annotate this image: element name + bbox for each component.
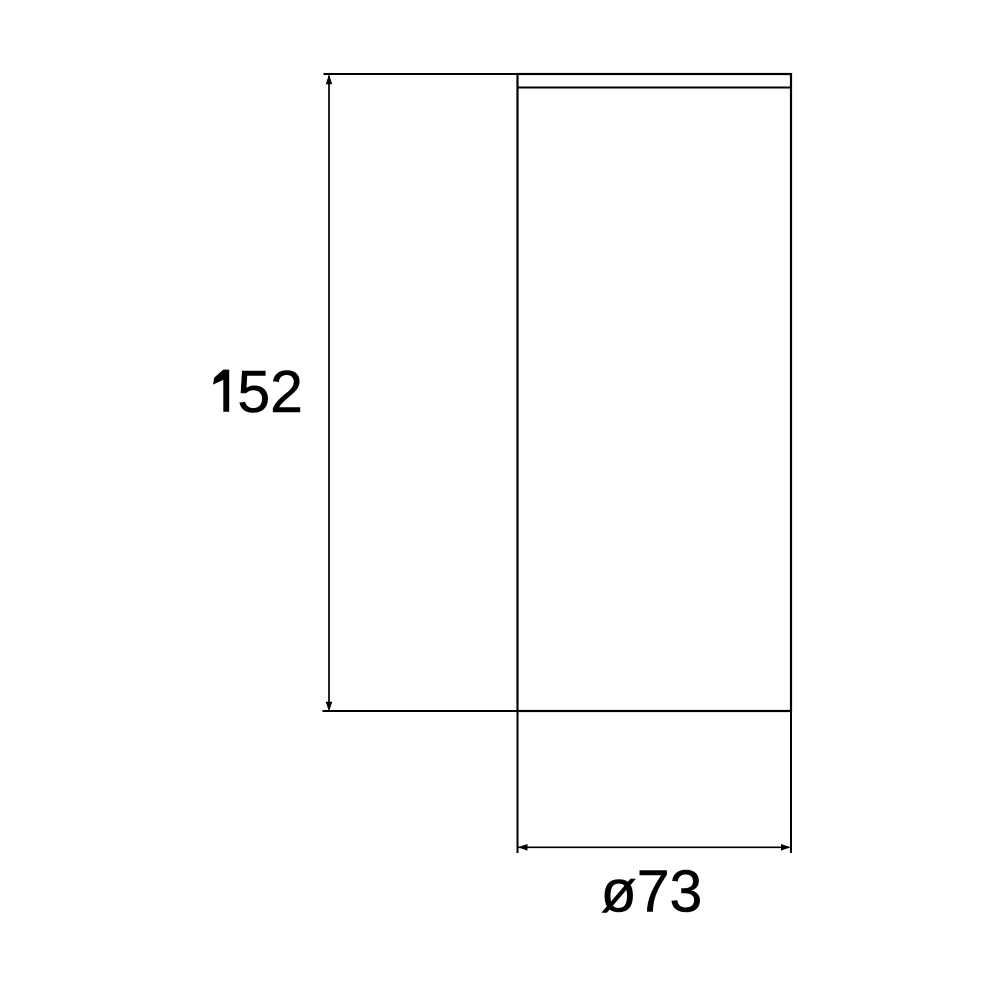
svg-text:52: 52: [237, 359, 303, 425]
svg-text:ø73: ø73: [601, 858, 703, 924]
